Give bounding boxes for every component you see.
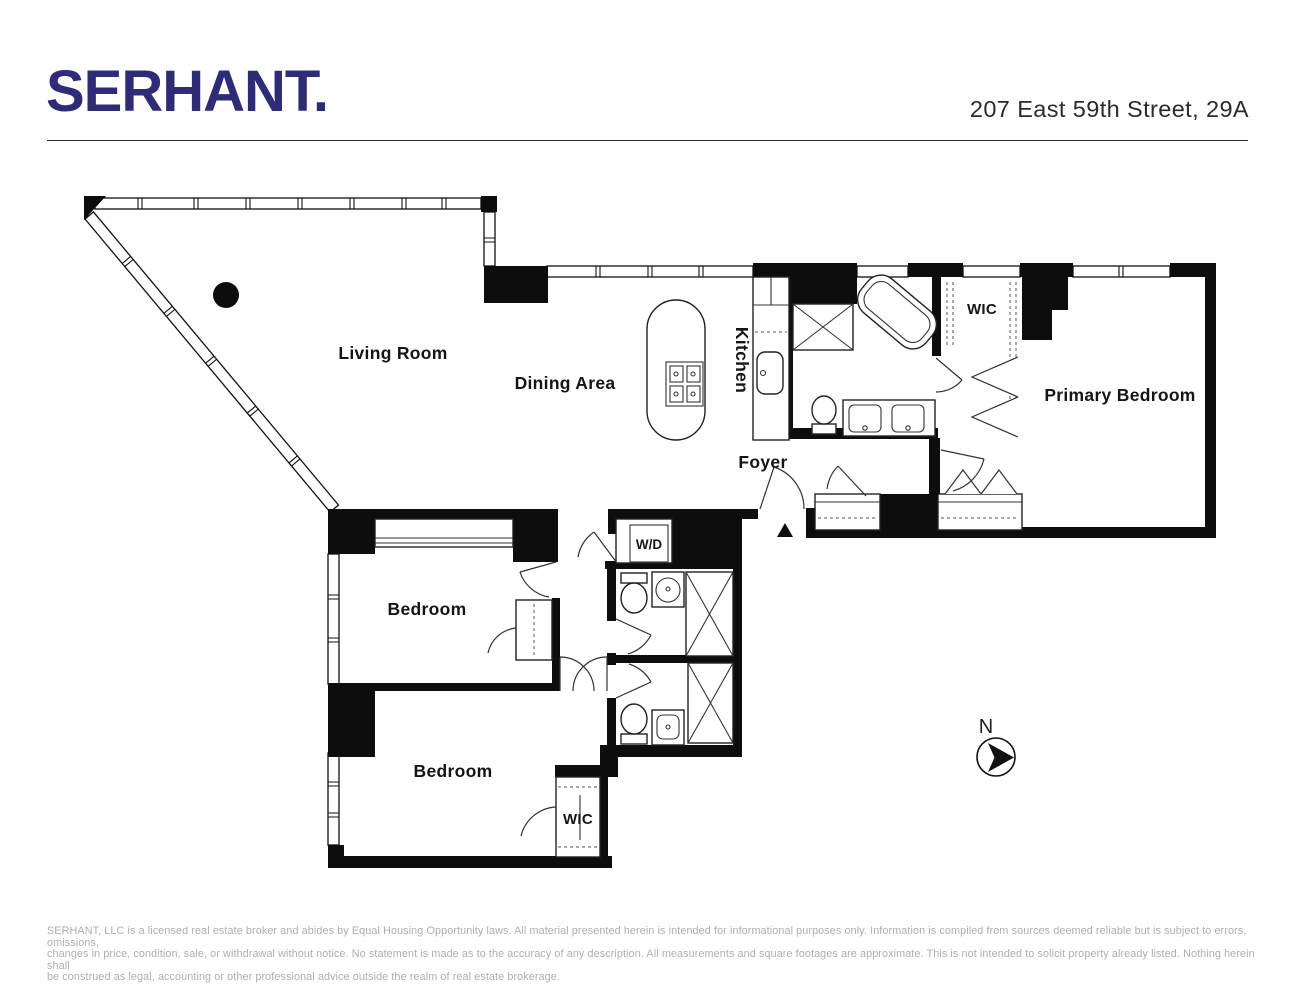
legal-disclaimer: SERHANT, LLC is a licensed real estate b… xyxy=(47,926,1257,984)
label-washer-dryer: W/D xyxy=(636,537,662,552)
disclaimer-line: SERHANT, LLC is a licensed real estate b… xyxy=(47,926,1257,949)
label-wic-primary: WIC xyxy=(967,301,997,318)
closet xyxy=(516,600,552,660)
toilet xyxy=(621,704,647,744)
north-label: N xyxy=(979,716,993,738)
hall-closet xyxy=(938,494,1022,530)
closet xyxy=(375,519,513,547)
shower xyxy=(688,663,733,743)
label-bedroom-upper: Bedroom xyxy=(388,599,467,619)
double-vanity xyxy=(843,400,935,436)
structural-column xyxy=(213,282,239,308)
toilet xyxy=(812,396,836,434)
sink xyxy=(652,710,684,745)
kitchen-island xyxy=(647,300,705,440)
disclaimer-line: changes in price, condition, sale, or wi… xyxy=(47,949,1257,972)
bathroom-lower xyxy=(621,663,733,745)
label-living-room: Living Room xyxy=(338,343,447,363)
bathroom-upper xyxy=(621,572,733,656)
label-bedroom-lower: Bedroom xyxy=(414,761,493,781)
bifold-closet-doors xyxy=(972,357,1018,437)
shower xyxy=(686,572,733,656)
shower xyxy=(793,304,853,350)
kitchen-fixtures xyxy=(647,277,789,440)
kitchen-counter xyxy=(753,277,789,440)
disclaimer-line: be construed as legal, accounting or oth… xyxy=(47,972,1257,984)
entry-arrow xyxy=(777,523,793,537)
sink xyxy=(652,572,684,607)
label-foyer: Foyer xyxy=(738,452,787,472)
label-kitchen: Kitchen xyxy=(732,327,752,393)
north-compass: N xyxy=(977,716,1015,776)
label-dining-area: Dining Area xyxy=(515,373,616,393)
floorplan-drawing: N Living Room Dining Area Kitchen Foyer … xyxy=(0,0,1294,1000)
label-wic-bedroom: WIC xyxy=(563,811,593,828)
bathtub xyxy=(851,268,944,356)
toilet xyxy=(621,573,647,613)
label-primary-bedroom: Primary Bedroom xyxy=(1044,385,1195,405)
hall-closet xyxy=(815,494,880,530)
